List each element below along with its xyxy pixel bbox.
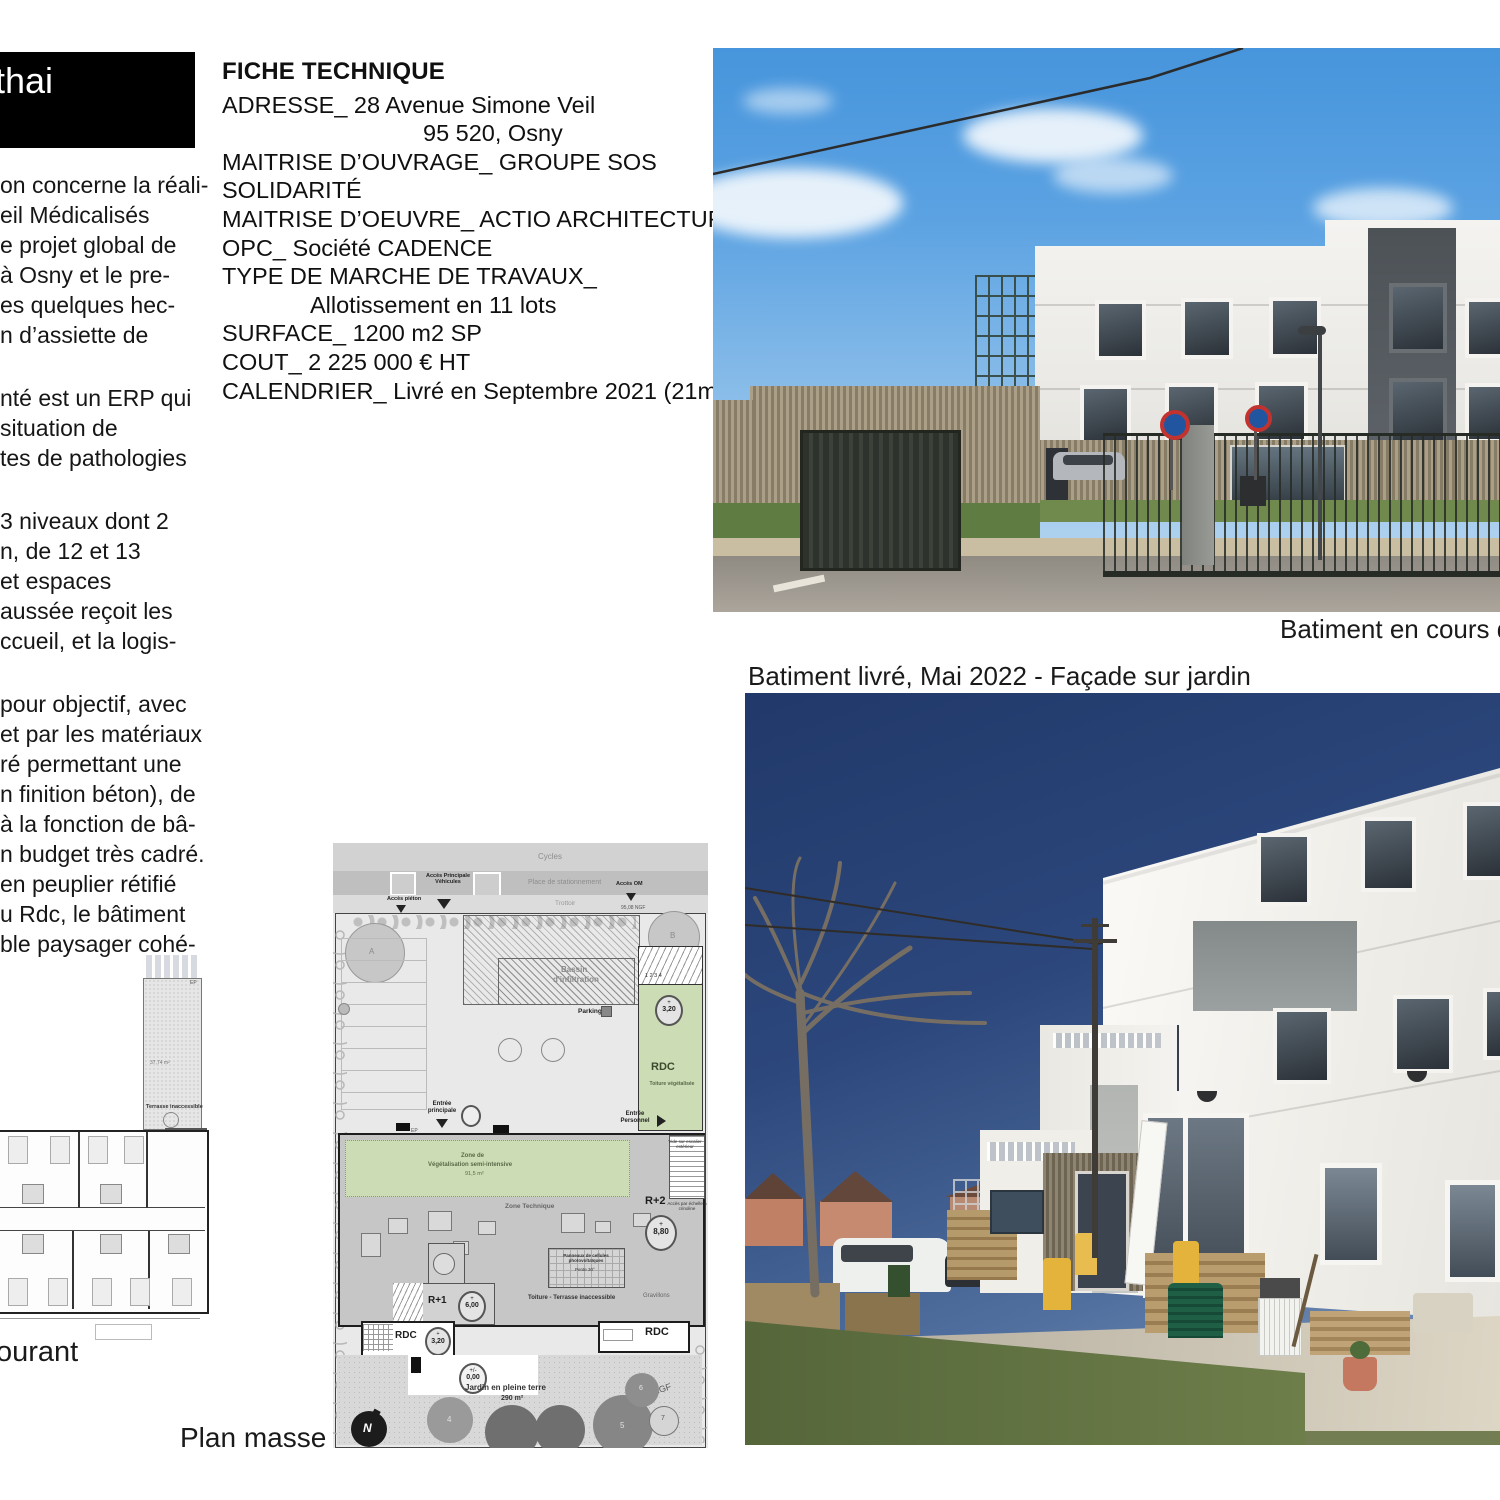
intro-paragraph: pour objectif, avecet par les matériauxr… xyxy=(0,689,218,959)
site-pv-label-1: Panneaux de cellules photovoltaïques xyxy=(551,1253,621,1263)
plan-railing xyxy=(143,955,200,978)
plan-dimension xyxy=(95,1324,152,1340)
lamp-head xyxy=(1298,326,1326,335)
text-line: eil Médicalisés xyxy=(0,200,218,230)
window xyxy=(1320,1163,1382,1265)
plan-bathroom xyxy=(100,1184,122,1204)
text-line: es quelques hec- xyxy=(0,290,218,320)
project-title-banner: thai xyxy=(0,52,195,148)
badge-600: 6,00 xyxy=(460,1302,484,1309)
sign-post xyxy=(1170,432,1173,490)
plan-bed xyxy=(8,1136,28,1164)
site-acces-vehicules-label: Accès Principale Véhicules xyxy=(423,873,473,885)
plan-bed xyxy=(8,1278,28,1306)
site-acces-pieton-label: Accès piéton xyxy=(387,896,421,902)
site-entree-personnel: Entrée Personnel xyxy=(615,1111,655,1124)
site-r1-label: R+1 xyxy=(428,1295,447,1306)
photo-delivered xyxy=(745,693,1500,1445)
pole-crossarm xyxy=(1073,939,1117,943)
site-ngf95-label: 95,08 NGF xyxy=(621,905,645,911)
text-line: à la fonction de bâ- xyxy=(0,809,218,839)
plan-dimension xyxy=(0,1318,200,1319)
site-equip-circle xyxy=(498,1038,522,1062)
arrow-down-icon xyxy=(436,1119,448,1128)
caption-site-plan: Plan masse xyxy=(180,1422,326,1454)
plan-wall xyxy=(72,1231,74,1309)
badge-000: 0,00 xyxy=(461,1374,485,1381)
plan-wall xyxy=(146,1132,148,1208)
site-tree-6-label: 6 xyxy=(639,1385,643,1392)
site-equipment xyxy=(595,1221,611,1233)
site-level-badge-600: + 6,00 xyxy=(458,1291,486,1322)
text-line: 3 niveaux dont 2 xyxy=(0,506,218,536)
fiche-row-allotissement: Allotissement en 11 lots xyxy=(310,291,762,320)
arrow-down-icon xyxy=(626,893,636,901)
text-line: aussée reçoit les xyxy=(0,596,218,626)
zinc-inset-volume xyxy=(1193,921,1357,1011)
site-veg-area: 91,5 m² xyxy=(465,1171,484,1177)
arrow-right-icon xyxy=(657,1115,666,1127)
site-equipment xyxy=(361,1233,381,1257)
fiche-row-surface: SURFACE_ 1200 m2 SP xyxy=(222,319,762,348)
text-line: n d’assiette de xyxy=(0,320,218,350)
site-equipment xyxy=(388,1218,408,1234)
site-r2-label: R+2 xyxy=(645,1195,666,1207)
site-entree-principale: Entrée principale xyxy=(421,1101,463,1114)
fiche-row-opc: OPC_ Société CADENCE xyxy=(222,234,762,263)
plan-bathroom xyxy=(22,1234,44,1254)
site-bassin-label-2: d'infiltration xyxy=(553,975,599,984)
site-entry-mat xyxy=(411,1357,421,1373)
intro-paragraph: nté est un ERP quisituation detes de pat… xyxy=(0,383,218,473)
badge-880: 8,80 xyxy=(647,1228,675,1236)
site-tree-5-label: 5 xyxy=(620,1421,624,1430)
site-jardin-area: 290 m² xyxy=(501,1395,523,1402)
plan-terrace-area: 37,74 m² xyxy=(150,1060,170,1066)
site-crinoline: Accès par échelle à crinoline xyxy=(667,1201,707,1211)
plan-corridor-wall xyxy=(0,1230,205,1231)
material-bags xyxy=(1413,1293,1473,1333)
fiche-row-moe: MAITRISE D’OEUVRE_ ACTIO ARCHITECTURE xyxy=(222,205,762,234)
grass-strip xyxy=(1305,1431,1500,1445)
text-line: n, de 12 et 13 xyxy=(0,536,218,566)
text-line: en peuplier rétifié xyxy=(0,869,218,899)
yellow-chair xyxy=(1043,1258,1071,1310)
lamp-post xyxy=(1318,330,1322,560)
site-rdc-hatch xyxy=(363,1324,393,1351)
site-plan: Cycles Place de stationnement Trottoir A… xyxy=(333,843,708,1448)
plan-bed xyxy=(48,1278,68,1306)
site-tree-dark xyxy=(535,1405,585,1448)
plan-bathroom xyxy=(22,1184,44,1204)
plant-pot xyxy=(1343,1357,1377,1391)
no-parking-sign xyxy=(1245,405,1272,432)
site-level-badge-320b: + 3,20 xyxy=(425,1327,451,1356)
text-line: n budget très cadré. xyxy=(0,839,218,869)
site-rdc-right-label: RDC xyxy=(645,1326,669,1338)
site-entrance-badge xyxy=(461,1105,481,1127)
fiche-row-cout: COUT_ 2 225 000 € HT xyxy=(222,348,762,377)
site-entry-mat xyxy=(396,1123,410,1131)
site-stair-nums: 1 2 3 4 xyxy=(645,973,662,979)
text-line: pour objectif, avec xyxy=(0,689,218,719)
yellow-chair xyxy=(1173,1241,1199,1289)
intro-text-column: on concerne la réali-eil Médicalisése pr… xyxy=(0,170,218,992)
text-line: ccueil, et la logis- xyxy=(0,626,218,656)
site-rdc-left-label: RDC xyxy=(395,1330,417,1341)
window xyxy=(1181,298,1233,359)
table xyxy=(990,1190,1044,1234)
site-rdc-label: RDC xyxy=(651,1061,675,1073)
site-tree-b-label: B xyxy=(670,931,675,940)
site-tree-4-label: 4 xyxy=(447,1415,451,1424)
site-bassin-label-1: Bassin xyxy=(561,965,587,974)
window xyxy=(1257,833,1311,906)
text-line: tes de pathologies xyxy=(0,443,218,473)
fiche-row-ville: 95 520, Osny xyxy=(423,119,762,148)
plan-bed xyxy=(172,1278,192,1306)
text-line: à Osny et le pre- xyxy=(0,260,218,290)
sign-post xyxy=(1254,428,1257,480)
window xyxy=(1393,995,1453,1073)
site-jardin-label: Jardin en pleine terre xyxy=(465,1383,546,1392)
site-kiosk xyxy=(390,872,416,896)
project-title-fragment: thai xyxy=(0,60,53,102)
site-parking-icon xyxy=(601,1006,612,1017)
pole-crossarm xyxy=(1081,924,1109,927)
plan-bed xyxy=(50,1136,70,1164)
plan-ep-label: EP xyxy=(190,980,197,986)
fiche-technique: FICHE TECHNIQUE ADRESSE_ 28 Avenue Simon… xyxy=(222,58,762,405)
caption-floor-plan: ourant xyxy=(0,1336,78,1369)
site-parking-strips xyxy=(341,938,427,1110)
roof-railing xyxy=(1053,1033,1161,1048)
intro-paragraph: on concerne la réali-eil Médicalisése pr… xyxy=(0,170,218,350)
window xyxy=(1483,988,1500,1060)
site-rdc-tag xyxy=(603,1329,633,1341)
metal-fence xyxy=(1103,433,1500,577)
site-toiture-veg-label: Toiture végétalisée xyxy=(647,1081,697,1087)
fiche-row-marche: TYPE DE MARCHE DE TRAVAUX_ xyxy=(222,262,762,291)
window xyxy=(1465,298,1500,358)
photo-construction xyxy=(713,48,1500,612)
site-vide-escalier: Vide sur escalier extérieur xyxy=(663,1139,707,1149)
fiche-row-moa: MAITRISE D’OUVRAGE_ GROUPE SOS SOLIDARIT… xyxy=(222,148,762,205)
site-toiture-terrasse: Toiture - Terrasse inaccessible xyxy=(528,1295,615,1301)
site-pv-label-2: Pente 30° xyxy=(575,1267,595,1272)
site-trottoir-label: Trottoir xyxy=(555,900,575,907)
gate-pillar xyxy=(1182,425,1214,565)
site-veg-label-2: Végétalisation semi-intensive xyxy=(428,1162,512,1168)
site-stationnement-label: Place de stationnement xyxy=(528,879,601,886)
text-line: u Rdc, le bâtiment xyxy=(0,899,218,929)
fiche-title: FICHE TECHNIQUE xyxy=(222,58,762,87)
site-r1-stair xyxy=(393,1283,423,1323)
mailbox xyxy=(1240,476,1266,506)
site-tree xyxy=(338,1003,350,1015)
north-label: N xyxy=(363,1421,372,1435)
caption-delivered: Batiment livré, Mai 2022 - Façade sur ja… xyxy=(748,661,1251,692)
plan-bed xyxy=(88,1136,108,1164)
fiche-row-adresse: ADRESSE_ 28 Avenue Simone Veil xyxy=(222,91,762,120)
window xyxy=(1463,802,1500,880)
entrance-gate xyxy=(800,430,961,571)
timber-fence xyxy=(713,400,753,506)
site-equipment xyxy=(428,1211,452,1231)
plan-corridor-wall xyxy=(0,1207,205,1208)
site-acces-om-label: Accès OM xyxy=(616,881,643,887)
site-veg-label-1: Zone de xyxy=(461,1153,484,1159)
caption-construction: Batiment en cours de xyxy=(1280,614,1500,645)
plan-bed xyxy=(92,1278,112,1306)
plan-bed xyxy=(124,1136,144,1164)
site-stair-block xyxy=(638,946,703,986)
portfolio-page: { "banner": { "title_fragment": "thai" }… xyxy=(0,0,1500,1500)
text-line: situation de xyxy=(0,413,218,443)
badge-320: 3,20 xyxy=(657,1006,681,1013)
no-parking-sign xyxy=(1160,410,1190,440)
text-line: on concerne la réali- xyxy=(0,170,218,200)
site-gravillons: Gravillons xyxy=(643,1293,670,1299)
text-line: et espaces xyxy=(0,566,218,596)
site-equipment xyxy=(478,1221,496,1235)
text-line: nté est un ERP qui xyxy=(0,383,218,413)
site-level-badge-320: + 3,20 xyxy=(655,995,683,1026)
text-line: n finition béton), de xyxy=(0,779,218,809)
arrow-down-icon xyxy=(437,899,451,909)
plan-bed xyxy=(130,1278,150,1306)
arrow-down-icon xyxy=(396,905,406,913)
text-line: et par les matériaux xyxy=(0,719,218,749)
site-cycles-band xyxy=(333,843,708,871)
window xyxy=(1095,300,1146,360)
intro-paragraph: 3 niveaux dont 2n, de 12 et 13et espaces… xyxy=(0,506,218,656)
site-equipment xyxy=(561,1213,585,1233)
site-equip-circle xyxy=(541,1038,565,1062)
text-line: ré permettant une xyxy=(0,749,218,779)
site-zone-technique: Zone Technique xyxy=(505,1203,554,1210)
plan-bathroom xyxy=(100,1234,122,1254)
site-parking-label: Parking xyxy=(578,1008,602,1015)
floor-plan: 37,74 m² Terrasse inaccessible EP xyxy=(0,952,212,1337)
window xyxy=(1273,1008,1331,1084)
window xyxy=(1445,1180,1500,1282)
pot-plant xyxy=(1350,1341,1370,1359)
window xyxy=(1361,817,1416,892)
plan-terrace-label: Terrasse inaccessible xyxy=(146,1104,203,1110)
site-badge-small xyxy=(433,1253,455,1275)
site-veg-band xyxy=(345,1140,630,1197)
window xyxy=(1389,283,1447,353)
site-kiosk xyxy=(473,872,501,897)
fiche-row-calendrier: CALENDRIER_ Livré en Septembre 2021 (21m… xyxy=(222,377,762,406)
plan-bathroom xyxy=(168,1234,190,1254)
green-bench xyxy=(1168,1283,1223,1338)
plan-symbol xyxy=(163,1112,179,1128)
site-level-badge-880: + 8,80 xyxy=(645,1215,677,1251)
site-cycles-label: Cycles xyxy=(538,852,562,861)
utility-pole xyxy=(1092,918,1098,1258)
text-line: e projet global de xyxy=(0,230,218,260)
badge-320b: 3,20 xyxy=(427,1338,449,1345)
plan-wall xyxy=(78,1132,80,1208)
site-tree-7-label: 7 xyxy=(661,1415,665,1422)
